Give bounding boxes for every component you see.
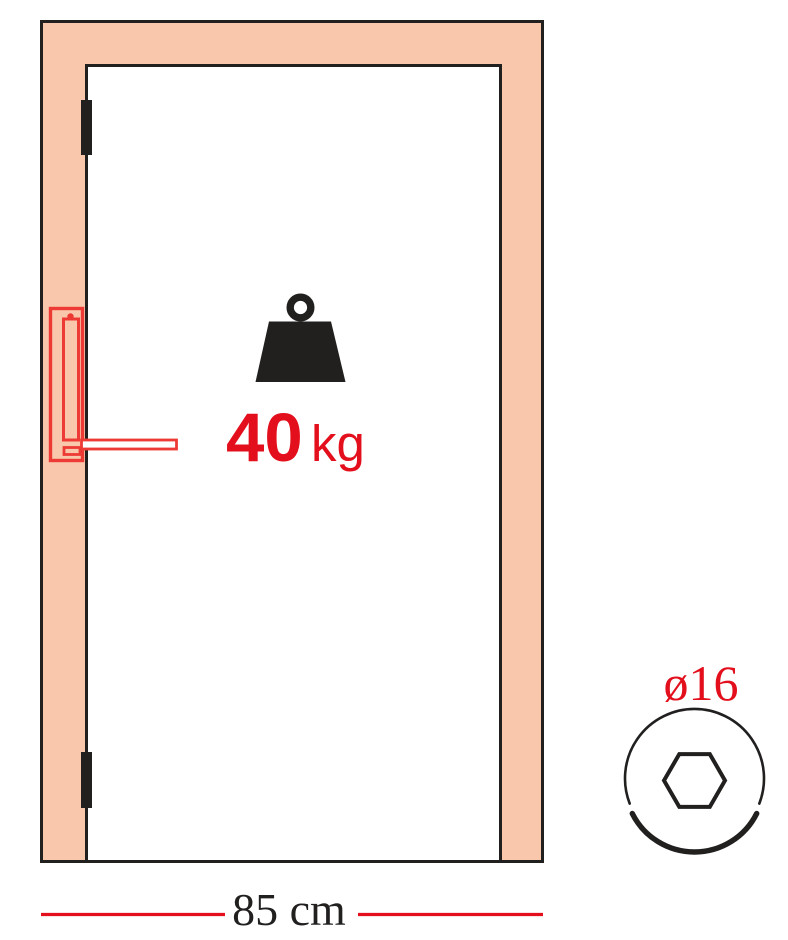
handle-lever-bar <box>82 440 177 449</box>
door-width-label: 85 cm <box>232 884 346 935</box>
hinge-bottom-icon <box>81 752 92 808</box>
hinge-top-icon <box>81 100 92 155</box>
door-spec-diagram: 40 kg 85 cm ø16 <box>0 0 788 940</box>
screw-head-outline-thick <box>632 814 756 852</box>
weight-body <box>256 322 346 383</box>
hex-socket <box>664 754 725 807</box>
weight-value-label: 40 <box>226 399 303 476</box>
weight-unit-label: kg <box>311 415 365 472</box>
handle-pin <box>67 313 73 319</box>
diagram-svg: 40 kg 85 cm ø16 <box>0 0 788 940</box>
hex-socket-screw-head-icon <box>625 709 764 852</box>
screw-diameter-label: ø16 <box>664 655 739 711</box>
